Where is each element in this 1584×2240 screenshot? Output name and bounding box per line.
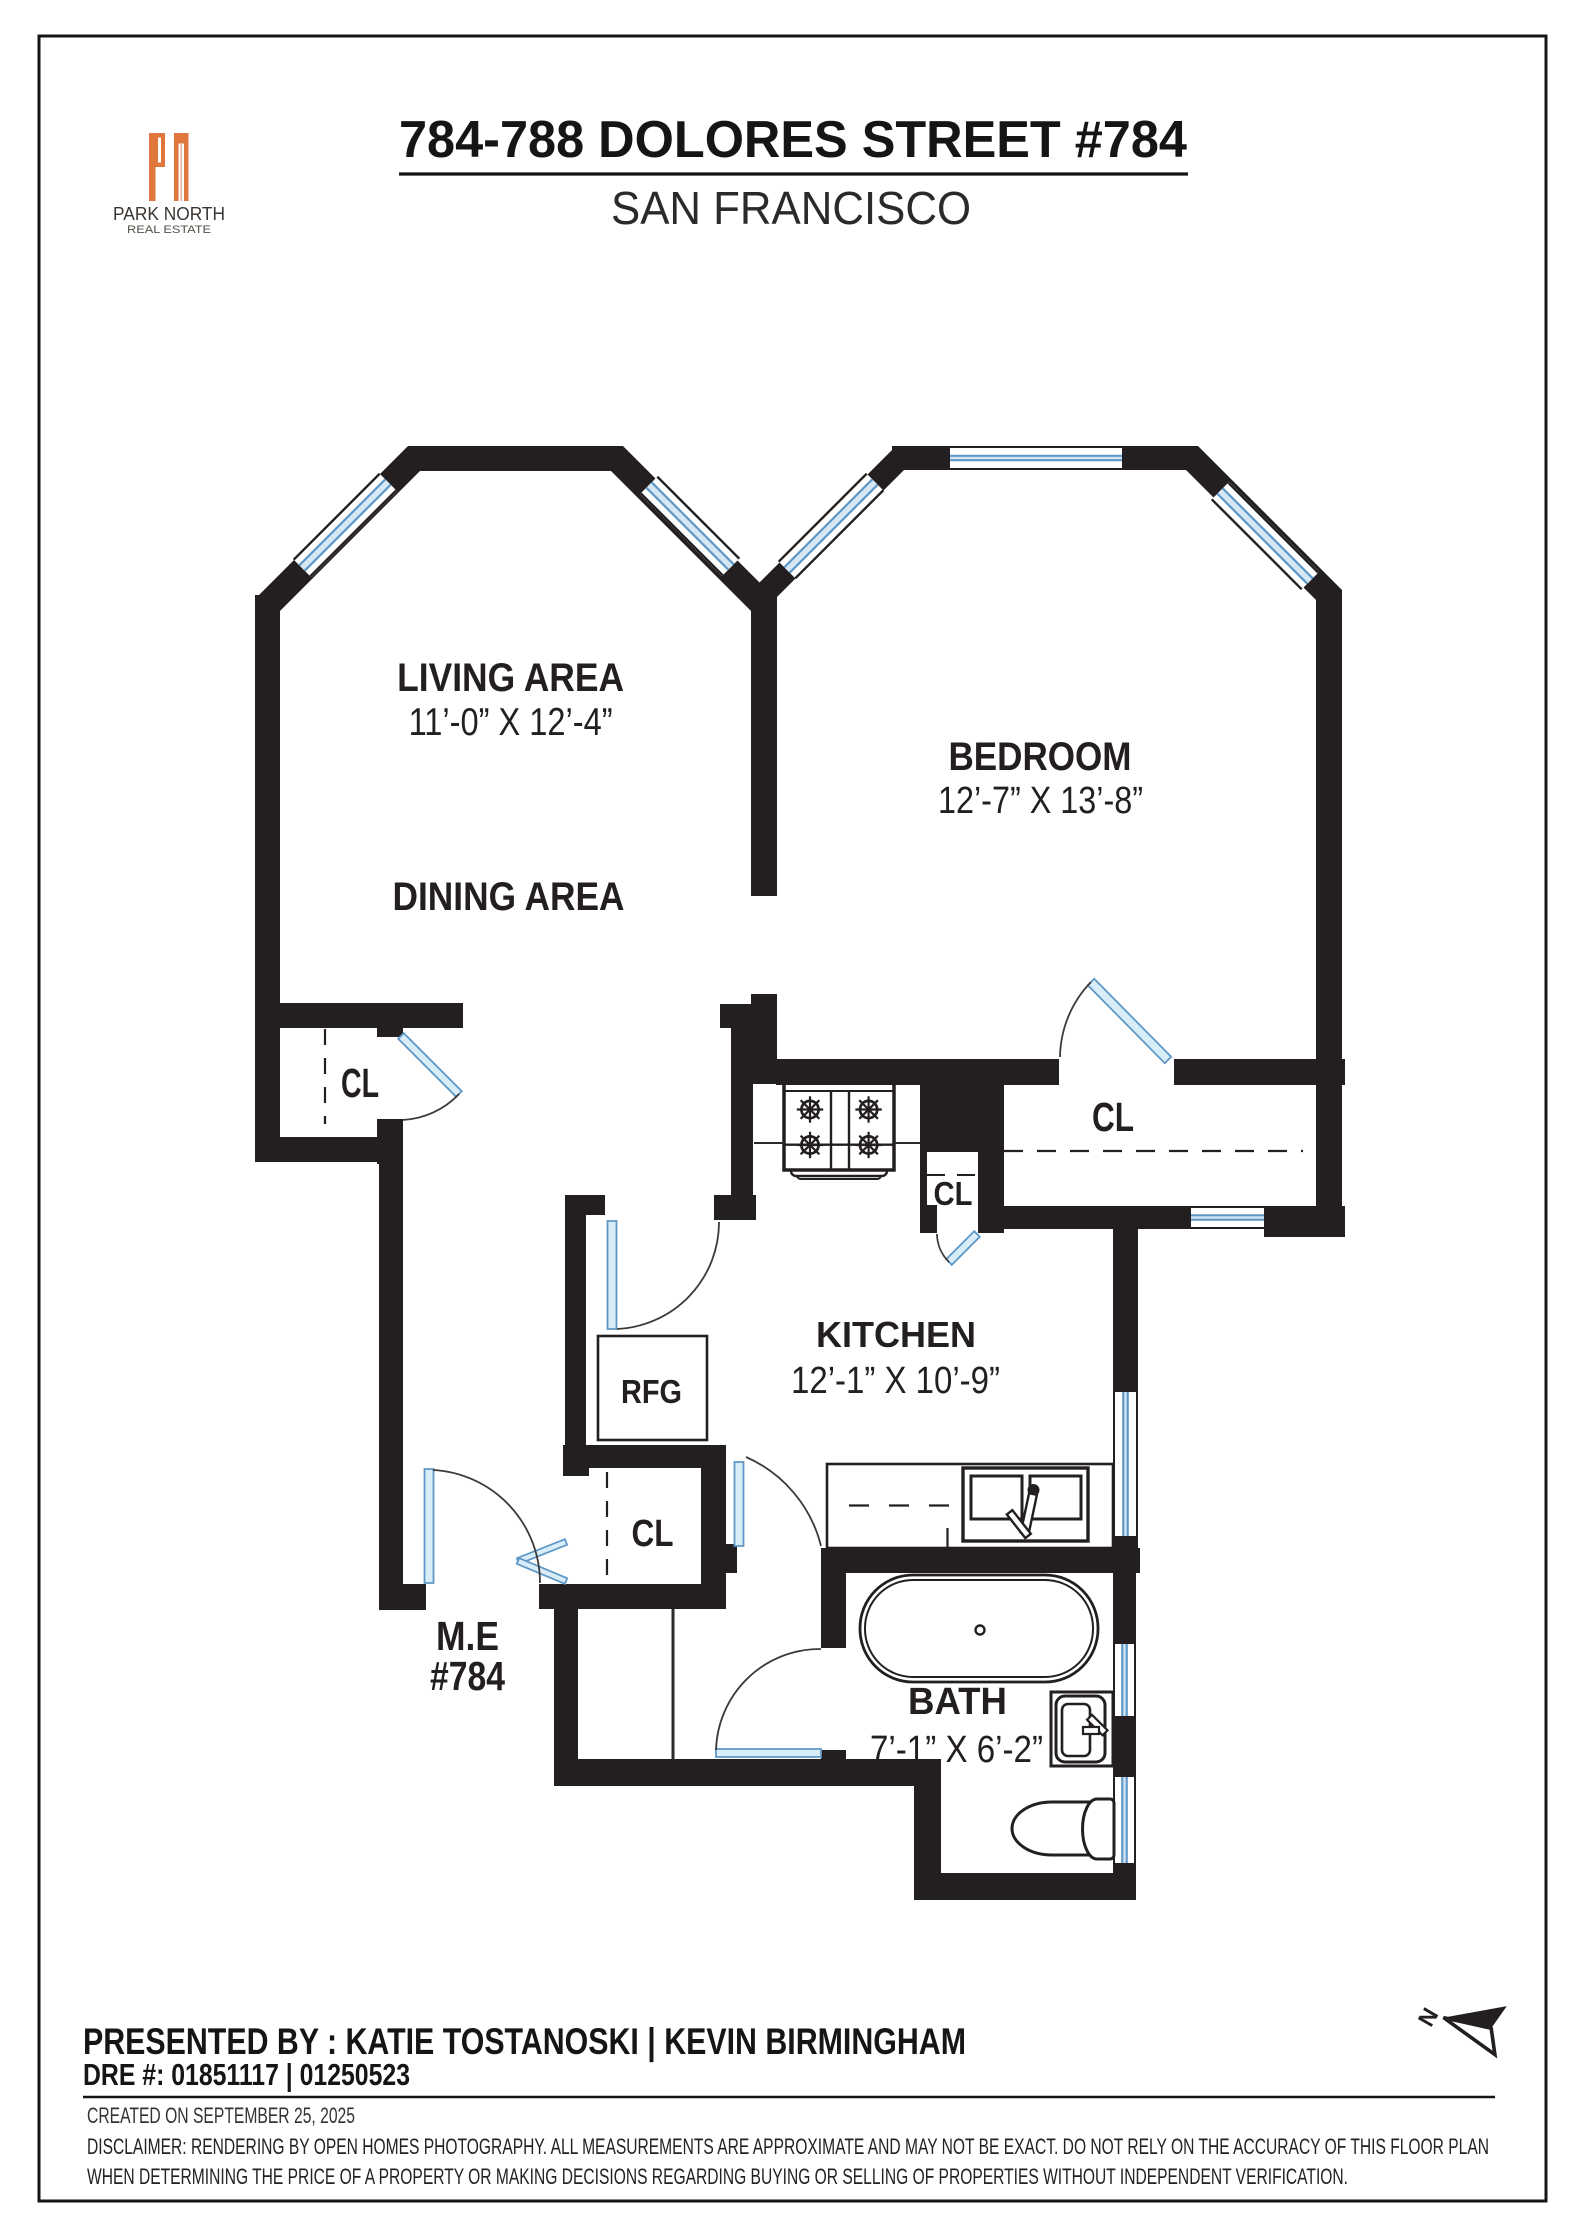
svg-text:CL: CL — [341, 1060, 379, 1106]
svg-text:WHEN DETERMINING THE PRICE OF: WHEN DETERMINING THE PRICE OF A PROPERTY… — [87, 2164, 1348, 2189]
svg-text:SAN FRANCISCO: SAN FRANCISCO — [611, 182, 971, 234]
svg-text:11’-0” X 12’-4”: 11’-0” X 12’-4” — [409, 701, 613, 744]
svg-text:CL: CL — [1092, 1094, 1134, 1140]
svg-text:KITCHEN: KITCHEN — [816, 1314, 976, 1355]
svg-text:CREATED ON SEPTEMBER 25, 2025: CREATED ON SEPTEMBER 25, 2025 — [87, 2103, 355, 2128]
svg-text:DINING AREA: DINING AREA — [393, 875, 625, 919]
svg-text:BATH: BATH — [908, 1681, 1007, 1723]
svg-text:REAL ESTATE: REAL ESTATE — [127, 224, 211, 236]
svg-text:CL: CL — [632, 1513, 674, 1555]
svg-text:DRE #: 01851117 | 01250523: DRE #: 01851117 | 01250523 — [83, 2057, 410, 2092]
svg-text:12’-1” X 10’-9”: 12’-1” X 10’-9” — [791, 1360, 1000, 1402]
svg-text:RFG: RFG — [621, 1373, 682, 1410]
svg-text:DISCLAIMER: RENDERING BY OPEN: DISCLAIMER: RENDERING BY OPEN HOMES PHOT… — [87, 2134, 1489, 2159]
svg-text:784-788 DOLORES STREET #784: 784-788 DOLORES STREET #784 — [399, 111, 1187, 169]
svg-text:12’-7” X 13’-8”: 12’-7” X 13’-8” — [938, 780, 1143, 822]
svg-text:7’-1” X 6’-2”: 7’-1” X 6’-2” — [870, 1729, 1043, 1771]
svg-text:N: N — [1413, 2003, 1444, 2030]
svg-text:BEDROOM: BEDROOM — [949, 735, 1132, 779]
svg-text:PARK NORTH: PARK NORTH — [113, 204, 225, 224]
svg-text:#784: #784 — [430, 1653, 505, 1699]
svg-text:LIVING AREA: LIVING AREA — [397, 656, 624, 700]
svg-text:CL: CL — [934, 1175, 973, 1212]
